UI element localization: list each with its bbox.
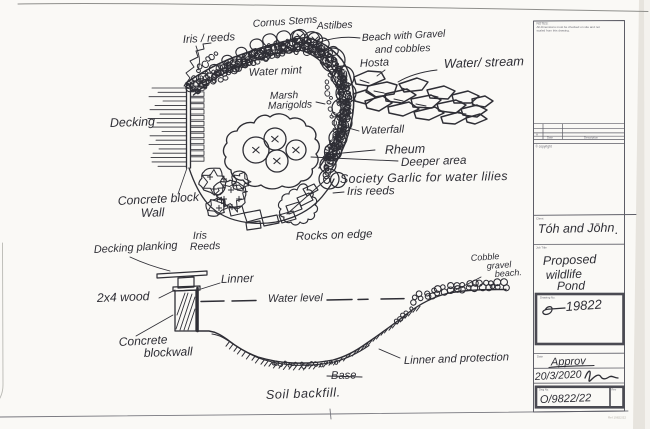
svg-text:Linner: Linner	[221, 271, 255, 286]
svg-text:Tóh and Jōhn: Tóh and Jōhn	[538, 221, 615, 236]
svg-text:Pond: Pond	[557, 279, 586, 293]
svg-text:Date: Date	[537, 355, 543, 359]
svg-text:Astilbes: Astilbes	[316, 20, 353, 32]
svg-text:Job Title: Job Title	[536, 246, 547, 250]
svg-text:Dwg No.: Dwg No.	[539, 388, 549, 392]
svg-text:.: .	[615, 222, 619, 237]
svg-text:19822: 19822	[565, 296, 603, 314]
svg-text:Soil backfill.: Soil backfill.	[266, 385, 341, 402]
svg-text:Decking: Decking	[110, 114, 156, 130]
svg-text:A: A	[536, 133, 538, 137]
svg-text:Water/ stream: Water/ stream	[444, 53, 525, 71]
svg-text:Iris reeds: Iris reeds	[347, 184, 395, 198]
svg-text:2x4 wood: 2x4 wood	[96, 289, 151, 305]
svg-text:Wall: Wall	[141, 205, 165, 220]
svg-text:Hosta: Hosta	[360, 56, 390, 70]
svg-text:Drawing No.: Drawing No.	[540, 296, 556, 300]
svg-text:Ref 19822/22: Ref 19822/22	[608, 416, 626, 420]
svg-text:© copyright: © copyright	[536, 145, 552, 149]
svg-text:Marigolds: Marigolds	[268, 99, 313, 112]
svg-text:blockwall: blockwall	[144, 344, 193, 360]
svg-text:Description: Description	[584, 136, 598, 140]
svg-text:scaled from this drawing.: scaled from this drawing.	[537, 29, 570, 33]
svg-text:Deeper area: Deeper area	[401, 153, 467, 169]
svg-text:Client: Client	[536, 217, 544, 221]
svg-text:Society Garlic for water lil: Society Garlic for water lilies	[340, 169, 508, 186]
svg-text:Water level: Water level	[268, 292, 324, 305]
svg-text:Proposed: Proposed	[543, 252, 598, 268]
svg-text:Waterfall: Waterfall	[361, 123, 405, 137]
svg-text:beach.: beach.	[494, 267, 522, 279]
svg-text:O/9822/22: O/9822/22	[540, 392, 592, 406]
svg-text:Rev: Rev	[612, 388, 617, 392]
svg-text:and cobbles: and cobbles	[375, 43, 431, 56]
svg-text:20/3/2020: 20/3/2020	[534, 369, 582, 383]
svg-text:Date: Date	[547, 136, 553, 140]
svg-text:Reeds: Reeds	[190, 240, 222, 253]
